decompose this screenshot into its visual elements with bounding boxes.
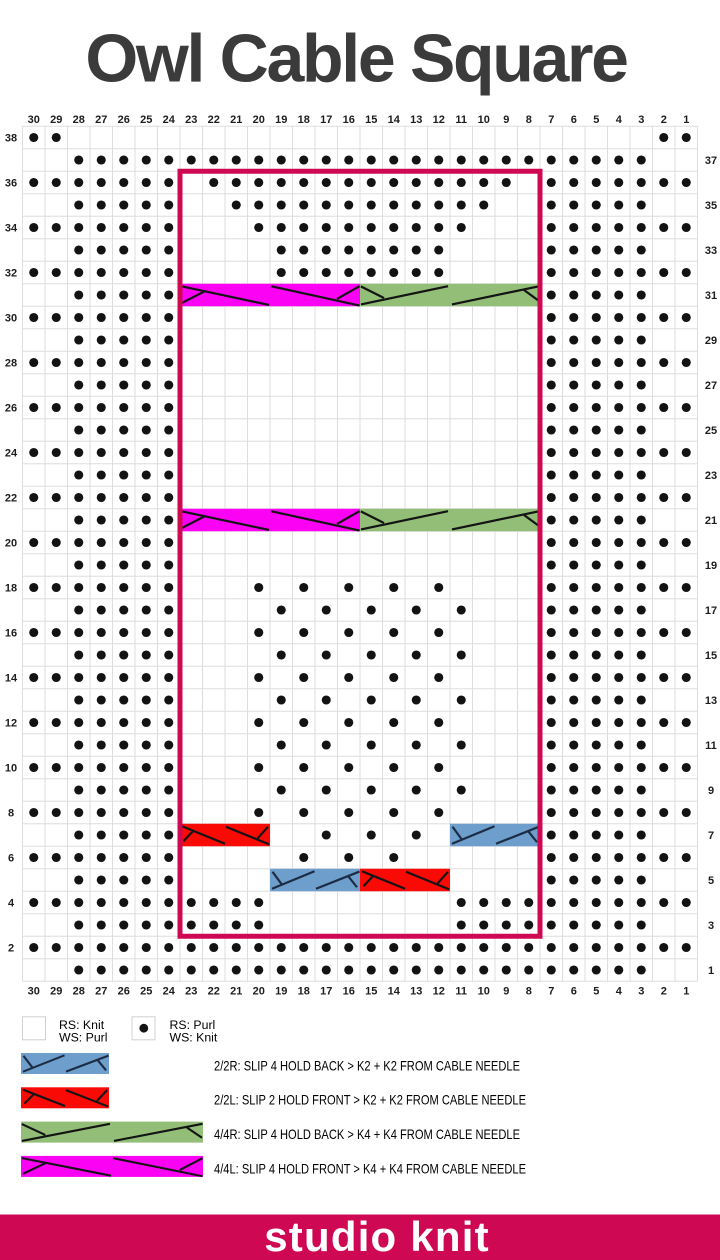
svg-text:25: 25 [140, 986, 152, 998]
svg-text:16: 16 [5, 628, 17, 640]
svg-text:3: 3 [638, 986, 644, 998]
svg-text:27: 27 [95, 986, 107, 998]
svg-text:32: 32 [5, 268, 17, 280]
svg-text:13: 13 [410, 114, 422, 126]
svg-text:2/2L: SLIP 2 HOLD FRONT > K2 +: 2/2L: SLIP 2 HOLD FRONT > K2 + K2 FROM C… [214, 1092, 526, 1108]
svg-text:19: 19 [705, 560, 717, 572]
svg-text:18: 18 [5, 583, 17, 595]
svg-text:21: 21 [705, 515, 717, 527]
svg-text:8: 8 [526, 986, 532, 998]
svg-text:26: 26 [118, 986, 130, 998]
svg-text:16: 16 [343, 114, 355, 126]
svg-text:34: 34 [5, 223, 18, 235]
svg-text:3: 3 [708, 920, 714, 932]
svg-text:27: 27 [705, 380, 717, 392]
svg-text:23: 23 [705, 470, 717, 482]
svg-text:10: 10 [478, 114, 490, 126]
svg-text:3: 3 [638, 114, 644, 126]
svg-text:17: 17 [320, 986, 332, 998]
svg-text:14: 14 [5, 673, 18, 685]
svg-text:4/4L: SLIP 4 HOLD FRONT > K4 +: 4/4L: SLIP 4 HOLD FRONT > K4 + K4 FROM C… [214, 1160, 526, 1176]
svg-text:11: 11 [455, 114, 467, 126]
svg-text:7: 7 [548, 986, 554, 998]
svg-text:19: 19 [275, 986, 287, 998]
svg-text:10: 10 [478, 986, 490, 998]
svg-text:18: 18 [298, 114, 310, 126]
svg-text:22: 22 [208, 986, 220, 998]
svg-text:2: 2 [661, 986, 667, 998]
svg-text:6: 6 [571, 986, 577, 998]
svg-text:20: 20 [253, 986, 265, 998]
svg-text:17: 17 [320, 114, 332, 126]
svg-text:31: 31 [705, 290, 717, 302]
svg-text:5: 5 [593, 986, 599, 998]
svg-text:12: 12 [433, 986, 445, 998]
svg-text:22: 22 [208, 114, 220, 126]
svg-text:20: 20 [5, 538, 17, 550]
svg-text:8: 8 [526, 114, 532, 126]
svg-text:19: 19 [275, 114, 287, 126]
svg-text:12: 12 [5, 718, 17, 730]
svg-text:22: 22 [5, 493, 17, 505]
svg-text:26: 26 [118, 114, 130, 126]
svg-text:14: 14 [388, 114, 401, 126]
svg-text:23: 23 [185, 986, 197, 998]
svg-text:5: 5 [593, 114, 599, 126]
svg-text:28: 28 [73, 114, 85, 126]
svg-text:37: 37 [705, 155, 717, 167]
svg-text:35: 35 [705, 200, 717, 212]
svg-text:4/4R: SLIP 4 HOLD BACK > K4 +: 4/4R: SLIP 4 HOLD BACK > K4 + K4 FROM CA… [214, 1126, 520, 1142]
svg-text:28: 28 [5, 358, 17, 370]
svg-text:10: 10 [5, 763, 17, 775]
svg-text:29: 29 [50, 986, 62, 998]
svg-text:29: 29 [705, 335, 717, 347]
svg-text:studio knit: studio knit [264, 1213, 490, 1260]
svg-text:9: 9 [503, 114, 509, 126]
svg-text:1: 1 [683, 986, 689, 998]
svg-text:8: 8 [8, 808, 14, 820]
svg-text:30: 30 [28, 114, 40, 126]
svg-text:15: 15 [705, 650, 717, 662]
svg-text:2: 2 [661, 114, 667, 126]
svg-text:27: 27 [95, 114, 107, 126]
svg-text:13: 13 [705, 695, 717, 707]
svg-text:24: 24 [163, 114, 176, 126]
svg-text:7: 7 [548, 114, 554, 126]
svg-text:18: 18 [298, 986, 310, 998]
svg-text:25: 25 [705, 425, 717, 437]
svg-text:29: 29 [50, 114, 62, 126]
svg-text:16: 16 [343, 986, 355, 998]
svg-text:25: 25 [140, 114, 152, 126]
svg-text:21: 21 [230, 986, 242, 998]
svg-text:13: 13 [410, 986, 422, 998]
svg-text:30: 30 [28, 986, 40, 998]
svg-text:23: 23 [185, 114, 197, 126]
svg-text:1: 1 [708, 965, 714, 977]
svg-text:30: 30 [5, 313, 17, 325]
svg-text:7: 7 [708, 830, 714, 842]
svg-text:1: 1 [683, 114, 689, 126]
svg-text:15: 15 [365, 986, 377, 998]
svg-text:15: 15 [365, 114, 377, 126]
svg-text:5: 5 [708, 875, 714, 887]
svg-text:4: 4 [616, 114, 623, 126]
svg-text:11: 11 [705, 740, 717, 752]
svg-text:33: 33 [705, 245, 717, 257]
svg-text:Owl Cable Square: Owl Cable Square [85, 21, 627, 97]
svg-text:21: 21 [230, 114, 242, 126]
svg-text:2: 2 [8, 943, 14, 955]
svg-text:38: 38 [5, 133, 17, 145]
svg-text:2/2R: SLIP 4 HOLD BACK > K2 +: 2/2R: SLIP 4 HOLD BACK > K2 + K2 FROM CA… [214, 1057, 520, 1073]
svg-text:9: 9 [503, 986, 509, 998]
svg-text:11: 11 [455, 986, 467, 998]
svg-text:36: 36 [5, 178, 17, 190]
svg-text:4: 4 [616, 986, 623, 998]
svg-text:24: 24 [163, 986, 176, 998]
svg-text:26: 26 [5, 403, 17, 415]
svg-text:4: 4 [8, 898, 15, 910]
svg-text:17: 17 [705, 605, 717, 617]
svg-text:28: 28 [73, 986, 85, 998]
svg-text:14: 14 [388, 986, 401, 998]
svg-text:WS: Knit: WS: Knit [170, 1031, 218, 1045]
svg-text:6: 6 [571, 114, 577, 126]
svg-text:WS: Purl: WS: Purl [59, 1031, 108, 1045]
svg-text:9: 9 [708, 785, 714, 797]
svg-text:20: 20 [253, 114, 265, 126]
svg-text:6: 6 [8, 853, 14, 865]
svg-text:24: 24 [5, 448, 18, 460]
svg-text:12: 12 [433, 114, 445, 126]
